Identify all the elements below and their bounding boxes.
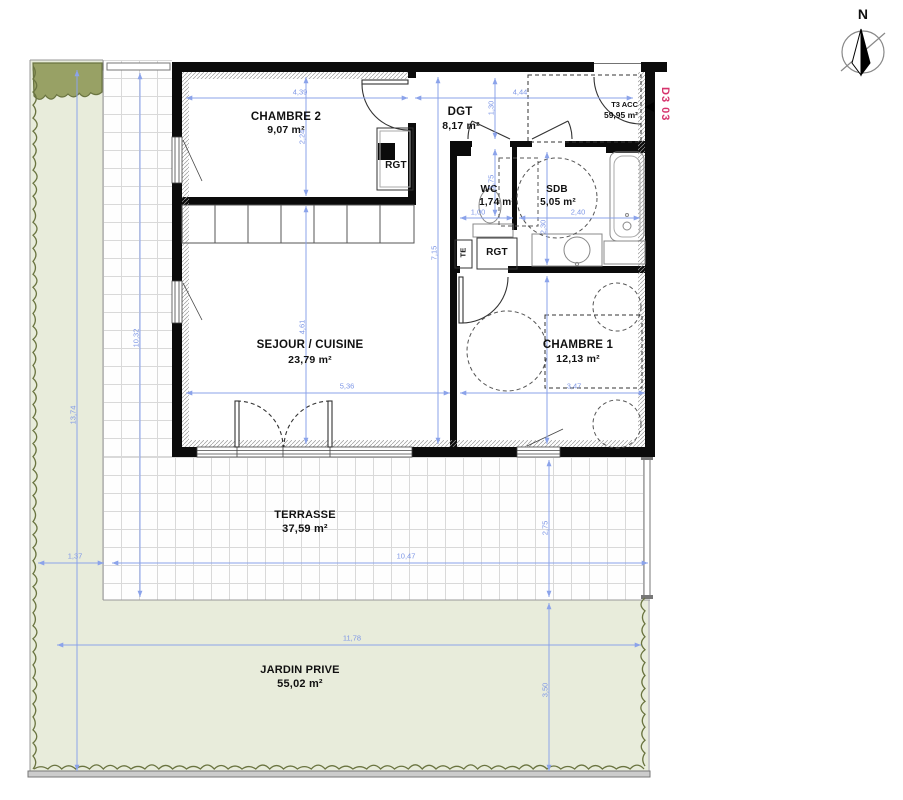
dim-terrasse-width: 10,47 — [397, 552, 416, 561]
sdb-name: SDB — [527, 184, 587, 195]
terrasse-area: 37,59 m² — [235, 523, 375, 535]
jardin-name: JARDIN PRIVE — [220, 664, 380, 676]
north-compass — [841, 29, 885, 75]
dim-sdb-width: 2,40 — [571, 208, 586, 217]
dim-dgt-height: 1,30 — [487, 101, 496, 116]
dim-chambre2-height: 2,24 — [298, 130, 307, 145]
entry-marker-icon — [645, 102, 654, 112]
unit-total-area: 59,95 m² — [573, 110, 638, 120]
dim-sdb-height: 2,30 — [539, 220, 548, 235]
dim-building-height: 7,15 — [430, 246, 439, 261]
north-label: N — [849, 6, 877, 22]
dim-wc-height: 1,75 — [487, 175, 496, 190]
terrasse-name: TERRASSE — [235, 509, 375, 521]
chambre2-area: 9,07 m² — [216, 124, 356, 136]
dim-sejour-width: 5,36 — [340, 382, 355, 391]
jardin-area: 55,02 m² — [220, 678, 380, 690]
unit-type-label: T3 ACC — [583, 100, 638, 109]
te-label: TE — [459, 243, 468, 263]
dim-terrasse-depth: 2,75 — [541, 521, 550, 536]
dim-jardin-depth: 3,50 — [541, 683, 550, 698]
dim-sejour-height: 4,61 — [298, 320, 307, 335]
chambre1-area: 12,13 m² — [508, 353, 648, 365]
dim-terrasse-offset: 1,37 — [68, 552, 83, 561]
dim-chambre2-width: 4,39 — [293, 88, 308, 97]
plan-code: D3 03 — [659, 87, 671, 121]
dim-chambre1-width: 3,47 — [567, 382, 582, 391]
chambre2-name: CHAMBRE 2 — [216, 111, 356, 123]
rgt-closet-label-1: RGT — [378, 160, 414, 171]
dgt-name: DGT — [425, 106, 495, 118]
rgt-closet-label-2: RGT — [479, 247, 515, 258]
chambre1-name: CHAMBRE 1 — [508, 339, 648, 351]
dim-wc-width: 1,00 — [471, 208, 486, 217]
sdb-area: 5,05 m² — [523, 197, 593, 208]
dim-terrasse-height: 10,32 — [132, 329, 141, 348]
dgt-area: 8,17 m² — [421, 120, 501, 132]
sejour-name: SEJOUR / CUISINE — [230, 339, 390, 351]
floor-plan: CHAMBRE 2 9,07 m² DGT 8,17 m² WC 1,74 m²… — [0, 0, 903, 800]
sejour-area: 23,79 m² — [230, 354, 390, 366]
dim-site-height: 13,74 — [69, 406, 78, 425]
dim-jardin-width: 11,78 — [343, 634, 361, 643]
wc-area: 1,74 m² — [462, 197, 532, 208]
dim-dgt-width: 4,44 — [513, 88, 528, 97]
